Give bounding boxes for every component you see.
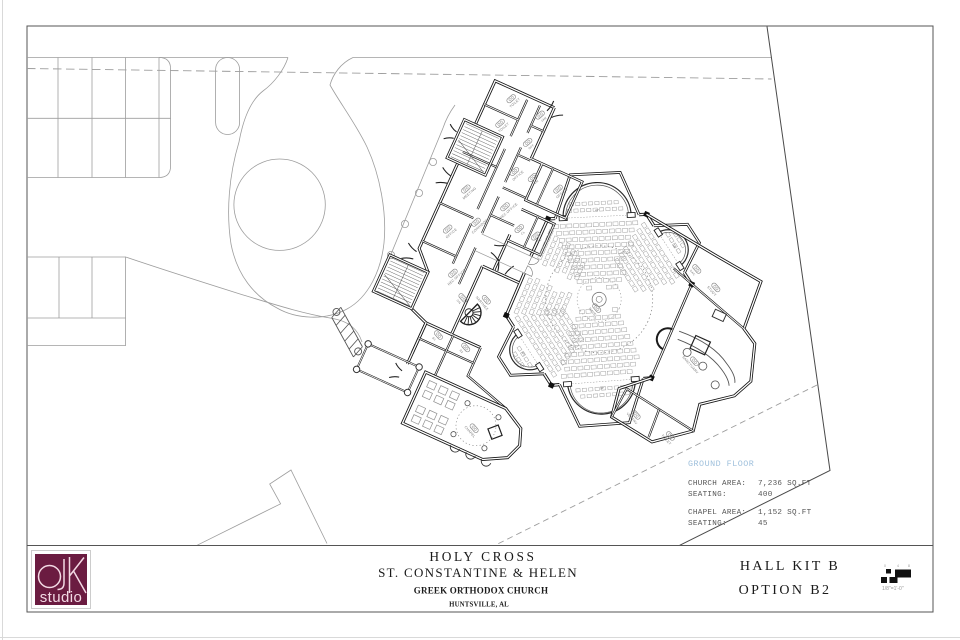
svg-text:8: 8 (908, 564, 910, 568)
svg-text:CHAPEL AREA:: CHAPEL AREA: (688, 509, 746, 517)
svg-text:7,236 SQ.FT: 7,236 SQ.FT (758, 480, 812, 488)
svg-text:47: 47 (595, 208, 599, 212)
svg-text:45: 45 (758, 520, 768, 528)
svg-text:ST. CONSTANTINE & HELEN: ST. CONSTANTINE & HELEN (378, 565, 578, 580)
svg-text:1,152 SQ.FT: 1,152 SQ.FT (758, 509, 812, 517)
svg-text:HALL KIT B: HALL KIT B (740, 559, 840, 574)
svg-text:CHURCH AREA:: CHURCH AREA: (688, 480, 746, 488)
svg-text:4: 4 (897, 564, 899, 568)
svg-text:HUNTSVILLE, AL: HUNTSVILLE, AL (449, 602, 509, 609)
svg-text:45: 45 (600, 385, 604, 389)
svg-text:studio: studio (40, 589, 82, 606)
svg-text:GROUND FLOOR: GROUND FLOOR (688, 459, 754, 469)
svg-text:GREEK ORTHODOX CHURCH: GREEK ORTHODOX CHURCH (414, 586, 548, 596)
svg-text:0: 0 (884, 564, 886, 568)
svg-text:400: 400 (758, 491, 773, 499)
svg-text:SEATING:: SEATING: (688, 520, 727, 528)
svg-text:SEATING:: SEATING: (688, 491, 727, 499)
svg-text:OPTION B2: OPTION B2 (739, 583, 832, 598)
svg-text:1/8"=1'-0": 1/8"=1'-0" (882, 586, 904, 592)
svg-text:HOLY CROSS: HOLY CROSS (429, 549, 536, 564)
